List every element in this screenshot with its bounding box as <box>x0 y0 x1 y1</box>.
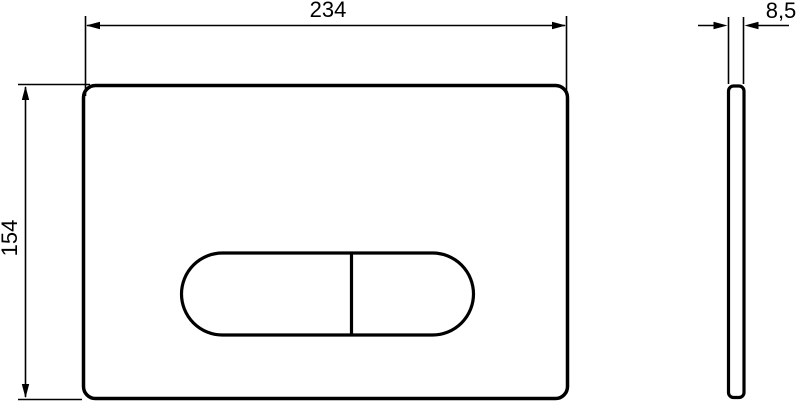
thickness-arrowhead-left <box>714 22 728 29</box>
height-arrowhead-bottom <box>22 384 29 398</box>
side-view-outline <box>729 86 745 398</box>
height-arrowhead-top <box>22 86 29 100</box>
technical-drawing-canvas: 234 154 8,5 <box>0 0 800 403</box>
width-dimension-label: 234 <box>310 0 347 22</box>
plate-outline <box>84 86 568 399</box>
thickness-dimension-label: 8,5 <box>766 0 797 23</box>
technical-drawing-page: 234 154 8,5 <box>0 0 800 403</box>
width-arrowhead-left <box>86 22 100 29</box>
width-dimension: 234 <box>86 0 567 96</box>
thickness-arrowhead-right <box>745 22 759 29</box>
front-view <box>84 86 568 399</box>
height-dimension-label: 154 <box>0 220 22 257</box>
width-arrowhead-right <box>552 22 566 29</box>
height-dimension: 154 <box>0 85 90 400</box>
thickness-dimension: 8,5 <box>698 0 796 84</box>
side-view <box>729 86 745 398</box>
